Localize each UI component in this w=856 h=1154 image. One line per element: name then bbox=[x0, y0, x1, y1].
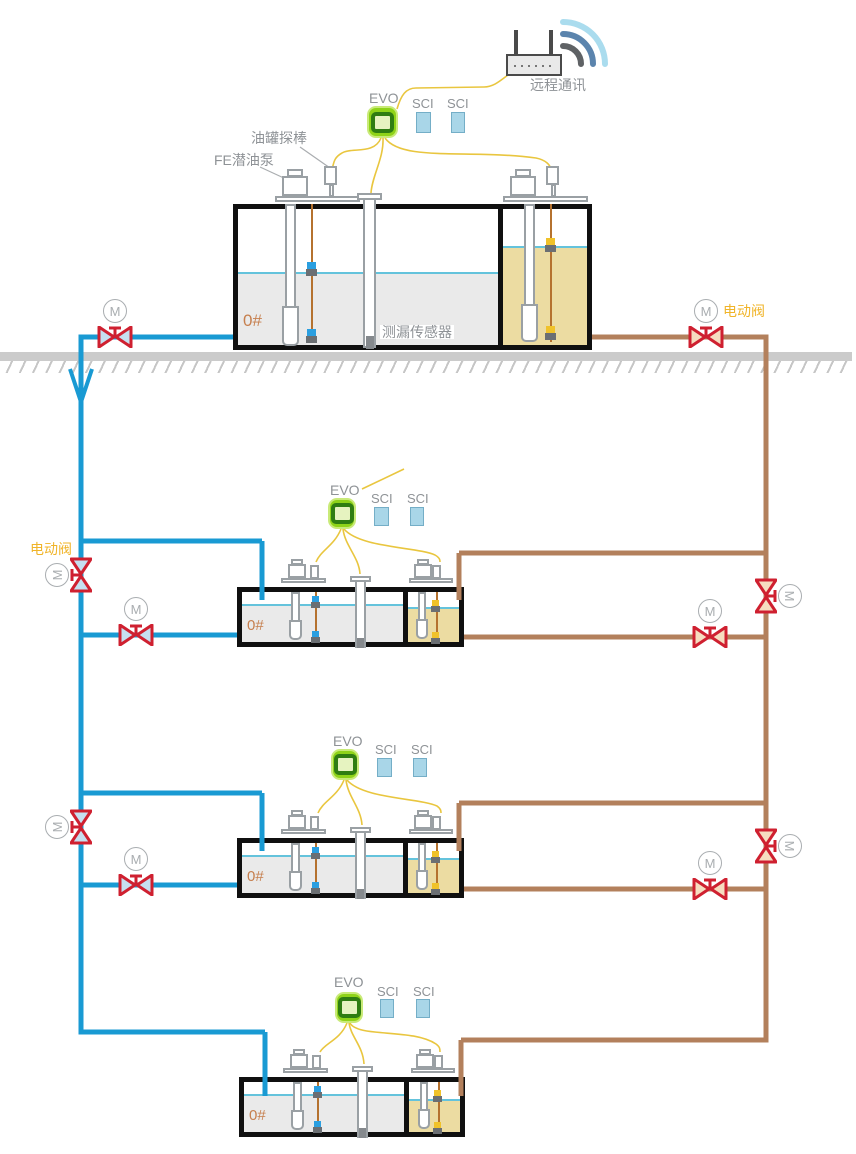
router bbox=[506, 54, 562, 76]
evo-screen-icon bbox=[371, 112, 394, 133]
tank-4-fuel-level bbox=[244, 1094, 404, 1132]
tank-1-probe-head bbox=[324, 166, 337, 185]
tank-3-right-pump-head bbox=[414, 815, 432, 829]
evo-console-3 bbox=[331, 749, 359, 780]
sci-module-3b bbox=[413, 758, 427, 777]
tank-2-fuel-level bbox=[242, 604, 403, 642]
motor-indicator-5: M bbox=[778, 584, 802, 608]
tank-3-right-probe-head bbox=[432, 816, 441, 830]
motor-valve-3 bbox=[70, 557, 92, 593]
tank-1-right-float-bottom-weight bbox=[545, 333, 556, 340]
motor-indicator-3: M bbox=[45, 563, 69, 587]
tank-3-probe-head bbox=[310, 816, 319, 830]
sci-label-3a: SCI bbox=[375, 743, 397, 756]
evo-label-4: EVO bbox=[334, 975, 364, 989]
leak-sensor-tube bbox=[363, 195, 376, 348]
tank-4-grade-label: 0# bbox=[249, 1108, 266, 1123]
evo4-wire-right bbox=[350, 1023, 440, 1052]
tank-4-right-float-top-weight bbox=[433, 1096, 442, 1102]
tank-4-right-pump-body bbox=[418, 1109, 430, 1129]
tank-3-left-flange bbox=[281, 829, 326, 834]
evo2-wire-left bbox=[316, 529, 341, 562]
tank-4-right-float-bottom-weight bbox=[433, 1128, 442, 1134]
tank-2-pump-cap bbox=[291, 559, 303, 565]
leak-sensor-plug bbox=[366, 336, 374, 349]
sci-label-2a: SCI bbox=[371, 492, 393, 505]
router-antenna-right bbox=[549, 30, 553, 56]
tank-1-diesel-level bbox=[503, 246, 587, 345]
motor-valve-6 bbox=[692, 626, 728, 648]
router-led-dots bbox=[514, 65, 556, 67]
evo-screen-icon bbox=[334, 754, 357, 775]
motor-indicator-4: M bbox=[124, 597, 148, 621]
diagram-canvas: 远程通讯 EVO SCI SCI 油罐探棒 FE潜油泵 0# 测漏传感器 EVO… bbox=[0, 0, 856, 1154]
tank-4-right-pump-tube bbox=[420, 1082, 428, 1112]
tank-2-float-top-weight bbox=[311, 602, 320, 608]
tank-4-probe-head bbox=[312, 1055, 321, 1069]
tank-1-pump-head bbox=[282, 176, 308, 196]
tank-2-right-probe-head bbox=[432, 565, 441, 579]
tank-3-right-pump-body bbox=[416, 870, 428, 890]
tank-4-left-flange bbox=[283, 1068, 328, 1073]
tank-3-pump-cap bbox=[291, 810, 303, 816]
evo1-wire-right bbox=[385, 138, 551, 169]
tank-2-left-flange bbox=[281, 578, 326, 583]
tank-4-leak-cap bbox=[352, 1066, 373, 1072]
remote-comm-label: 远程通讯 bbox=[530, 78, 586, 92]
tank-3-pump-head bbox=[288, 815, 306, 829]
tank-2-pump-body bbox=[289, 620, 302, 640]
tank-3-right-pump-tube bbox=[418, 843, 426, 873]
tank-2-right-pump-head bbox=[414, 564, 432, 578]
tank-2-leak-cap bbox=[350, 576, 371, 582]
blue-main-pipe bbox=[81, 337, 265, 1032]
sci-label-1a: SCI bbox=[412, 97, 434, 110]
tank-4-pump-cap bbox=[293, 1049, 305, 1055]
tank-3-grade-label: 0# bbox=[247, 869, 264, 884]
motor-valve-7 bbox=[70, 809, 92, 845]
tank-1-left-flange bbox=[275, 196, 360, 202]
leak-sensor-cap bbox=[357, 193, 382, 200]
tank-4-right-pump-head bbox=[416, 1054, 434, 1068]
motor-valve-10 bbox=[692, 878, 728, 900]
tank-probe-label: 油罐探棒 bbox=[251, 131, 307, 145]
evo3-wire-right bbox=[347, 780, 441, 813]
sci-module-4b bbox=[416, 999, 430, 1018]
sci-label-4b: SCI bbox=[413, 985, 435, 998]
evo-screen-icon bbox=[338, 997, 361, 1018]
tank-2-right-pump-cap bbox=[417, 559, 429, 565]
tank-1-pump-tube bbox=[285, 204, 296, 312]
tank-3-right-float-top-weight bbox=[431, 857, 440, 863]
tank-4-pump-body bbox=[291, 1110, 304, 1130]
sci-label-1b: SCI bbox=[447, 97, 469, 110]
motor-indicator-6: M bbox=[698, 599, 722, 623]
tank-2-right-flange bbox=[409, 578, 453, 583]
brown-main-pipe bbox=[461, 337, 766, 1040]
tank-1-float-bottom-weight bbox=[306, 336, 317, 343]
tank-2-right-float-bottom-weight bbox=[431, 638, 440, 644]
tank-1-right-pump-tube bbox=[524, 204, 535, 310]
evo-label-2: EVO bbox=[330, 483, 360, 497]
evo2-wire-right bbox=[344, 529, 440, 562]
tank-3-right-float-bottom-weight bbox=[431, 889, 440, 895]
tank-1-right-probe-head bbox=[546, 166, 559, 185]
evo3-wire-mid bbox=[346, 780, 362, 825]
evo-console-1 bbox=[367, 106, 398, 138]
evo1-wire-left bbox=[332, 138, 381, 169]
tank-4-right-pump-cap bbox=[419, 1049, 431, 1055]
wifi-arc-inner-icon bbox=[563, 46, 581, 64]
tank-4-pump-head bbox=[290, 1054, 308, 1068]
sci-module-1b bbox=[451, 112, 465, 133]
probe-leader-line bbox=[300, 147, 330, 168]
sci-module-2a bbox=[374, 507, 389, 526]
tank-2-probe-head bbox=[310, 565, 319, 579]
evo-label-3: EVO bbox=[333, 734, 363, 748]
tank-4-right-probe-head bbox=[434, 1055, 443, 1069]
motor-valve-5 bbox=[755, 578, 777, 614]
tank-3-pump-body bbox=[289, 871, 302, 891]
router-antenna-left bbox=[514, 30, 518, 56]
tank-4-leak-plug bbox=[359, 1128, 366, 1138]
tank-1-right-probe-line bbox=[550, 204, 552, 342]
motor-valve-2 bbox=[688, 326, 724, 348]
sci-label-2b: SCI bbox=[407, 492, 429, 505]
tank-1-right-float-top-weight bbox=[545, 245, 556, 252]
tank-4-float-bottom-weight bbox=[313, 1127, 322, 1133]
motor-indicator-9: M bbox=[778, 834, 802, 858]
motor-indicator-1: M bbox=[103, 299, 127, 323]
tank-1-probe-stem bbox=[329, 184, 334, 197]
tank-1-right-pump-cap bbox=[515, 169, 531, 177]
tank-1-pump-cap bbox=[287, 169, 303, 177]
submersible-pump-label: FE潜油泵 bbox=[214, 153, 274, 167]
sci-module-1a bbox=[416, 112, 431, 133]
tank-3-float-top-weight bbox=[311, 853, 320, 859]
tank-2-leak-plug bbox=[357, 638, 364, 648]
tank-1-right-probe-stem bbox=[551, 184, 556, 197]
electric-valve-label-left: 电动阀 bbox=[30, 542, 72, 556]
evo2-uplink-stub bbox=[362, 469, 404, 489]
motor-indicator-2: M bbox=[694, 299, 718, 323]
evo4-wire-left bbox=[320, 1023, 347, 1052]
motor-valve-8 bbox=[118, 874, 154, 896]
tank-2-right-pump-tube bbox=[418, 592, 426, 622]
tank-2-float-bottom-weight bbox=[311, 637, 320, 643]
tank-1-right-float-top bbox=[546, 238, 555, 245]
evo-console-4 bbox=[335, 992, 363, 1023]
tank-3-leak-plug bbox=[357, 889, 364, 899]
tank-1-right-pump-body bbox=[521, 304, 538, 342]
sci-module-3a bbox=[377, 758, 392, 777]
tank-1-float-bottom bbox=[307, 329, 316, 336]
tank-1-pump-body bbox=[282, 306, 299, 346]
sci-module-2b bbox=[410, 507, 424, 526]
sci-label-4a: SCI bbox=[377, 985, 399, 998]
tank-2-right-pump-body bbox=[416, 619, 428, 639]
tank-1-float-top bbox=[307, 262, 316, 269]
evo-label-1: EVO bbox=[369, 91, 399, 105]
electric-valve-label-right: 电动阀 bbox=[723, 304, 765, 318]
motor-indicator-7: M bbox=[45, 815, 69, 839]
motor-valve-4 bbox=[118, 624, 154, 646]
tank-3-fuel-level bbox=[242, 855, 403, 893]
tank-1-right-float-bottom bbox=[546, 326, 555, 333]
tank-3-right-flange bbox=[409, 829, 453, 834]
motor-valve-1 bbox=[97, 326, 133, 348]
tank-2-pump-head bbox=[288, 564, 306, 578]
sci-module-4a bbox=[380, 999, 394, 1018]
sci-label-3b: SCI bbox=[411, 743, 433, 756]
tank-1-float-top-weight bbox=[306, 269, 317, 276]
tank-3-right-pump-cap bbox=[417, 810, 429, 816]
tank-1-right-pump-head bbox=[510, 176, 536, 196]
motor-valve-9 bbox=[755, 828, 777, 864]
evo-screen-icon bbox=[331, 503, 354, 524]
tank-3-float-bottom-weight bbox=[311, 888, 320, 894]
tank-2-right-float-top-weight bbox=[431, 606, 440, 612]
tank-2-grade-label: 0# bbox=[247, 618, 264, 633]
tank-1-right-flange bbox=[503, 196, 588, 202]
tank-4-right-flange bbox=[411, 1068, 455, 1073]
tank-3-leak-cap bbox=[350, 827, 371, 833]
tank-4-float-top-weight bbox=[313, 1092, 322, 1098]
leak-sensor-label: 测漏传感器 bbox=[380, 325, 454, 339]
motor-indicator-10: M bbox=[698, 851, 722, 875]
motor-indicator-8: M bbox=[124, 847, 148, 871]
tank-1-grade-label: 0# bbox=[243, 312, 262, 329]
evo-console-2 bbox=[328, 498, 356, 529]
evo3-wire-left bbox=[318, 780, 344, 813]
